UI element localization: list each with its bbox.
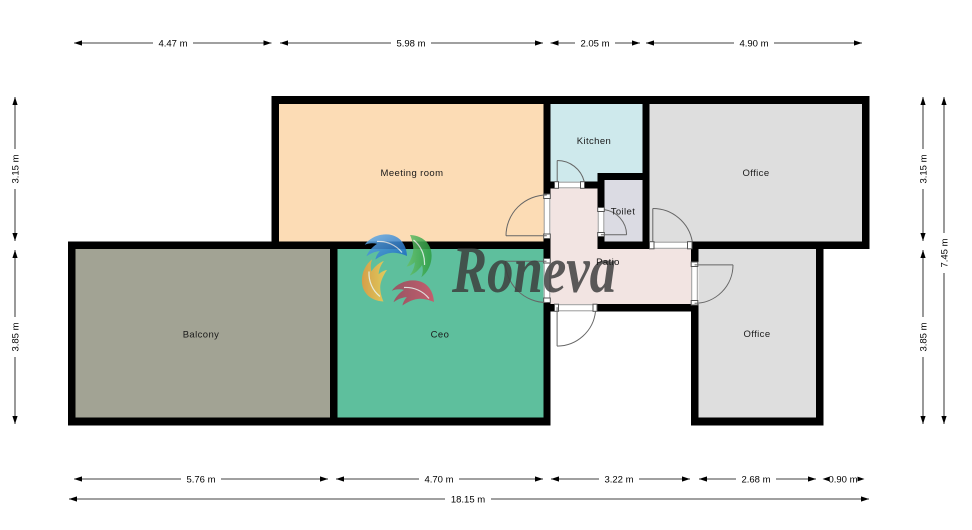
svg-text:Balcony: Balcony [183,330,220,341]
svg-text:0.90 m: 0.90 m [828,475,857,486]
svg-text:7.45 m: 7.45 m [940,238,951,267]
svg-text:Office: Office [743,329,770,340]
svg-text:Meeting room: Meeting room [381,168,444,179]
svg-text:Patio: Patio [596,257,620,268]
svg-text:18.15 m: 18.15 m [451,495,485,506]
svg-text:3.85 m: 3.85 m [919,322,930,351]
svg-text:Toilet: Toilet [611,207,636,218]
svg-text:Kitchen: Kitchen [577,136,612,147]
svg-text:3.22 m: 3.22 m [604,475,633,486]
svg-text:4.90 m: 4.90 m [739,39,768,50]
svg-text:5.76 m: 5.76 m [186,475,215,486]
svg-text:Office: Office [742,168,769,179]
svg-text:3.85 m: 3.85 m [11,322,22,351]
svg-text:2.05 m: 2.05 m [580,39,609,50]
svg-text:3.15 m: 3.15 m [919,154,930,183]
svg-text:2.68 m: 2.68 m [741,475,770,486]
svg-text:5.98 m: 5.98 m [396,39,425,50]
svg-text:Ceo: Ceo [431,330,450,341]
svg-text:4.70 m: 4.70 m [424,475,453,486]
svg-text:3.15 m: 3.15 m [11,154,22,183]
svg-text:4.47 m: 4.47 m [158,39,187,50]
svg-text:Roneva: Roneva [451,233,616,307]
